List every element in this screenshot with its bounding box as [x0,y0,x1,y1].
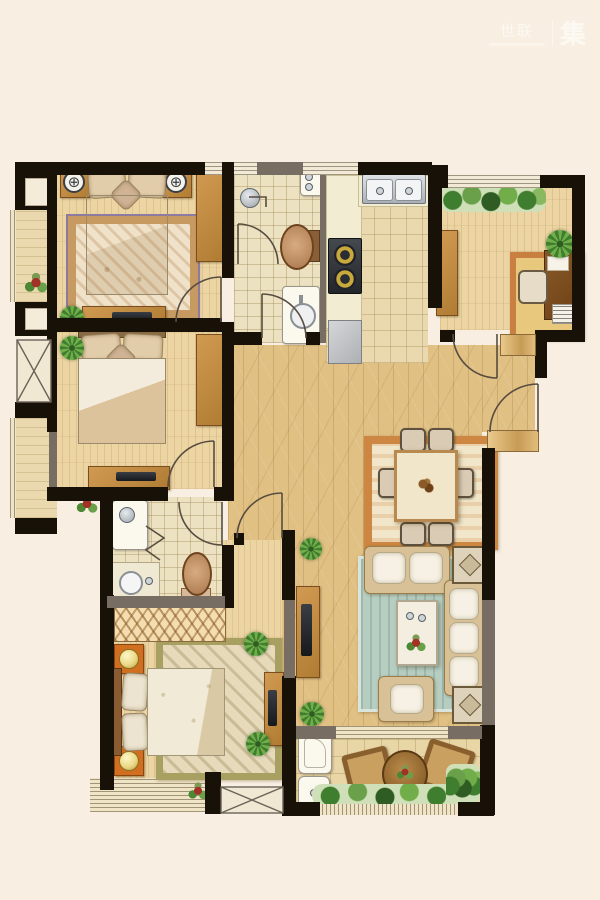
armchair [378,676,434,722]
niche [25,308,49,330]
wall [482,448,495,600]
duvet [147,668,225,756]
three-seat-sofa [444,580,486,696]
study-threshold [500,334,536,356]
wall [15,518,57,534]
wall [234,533,244,545]
plant-bed2-corner [60,336,84,360]
flower-bay-northwest [22,270,50,298]
headboard [113,668,122,756]
sink-basin [290,303,316,329]
wall [282,676,296,816]
dining-chair [400,428,426,452]
desk-chair [518,270,548,304]
plant-living-south [300,702,324,726]
wall [222,332,234,487]
burner [334,268,356,290]
pillow [121,712,149,751]
toilet-shared [280,222,318,268]
master-closet-hatched [114,606,226,642]
sink-basin [119,571,143,595]
shower-stall [112,500,148,550]
watermark-divider [552,20,553,46]
table-flowers [404,632,428,656]
wall [15,162,205,175]
wall [540,175,585,188]
wall [47,318,222,332]
wall [572,188,585,330]
master-bed [113,668,223,754]
table-centerpiece [416,476,436,496]
coffee-table [396,600,438,666]
toilet-ensuite [178,552,212,602]
bay-frame-west [10,418,16,518]
floor-plan-page: { "watermark": { "brand_left": "世联", "di… [0,0,600,900]
study-plant [546,230,574,258]
tv-niche-wall [284,596,295,678]
plant-hall [300,538,322,560]
window-north-2 [303,162,358,175]
bookstack [552,304,574,324]
wall [358,162,432,175]
bed-northwest [86,165,166,293]
loveseat [364,546,450,594]
duvet [78,358,166,444]
double-sink [362,174,426,204]
tv-west [116,472,156,481]
niche [25,178,49,206]
wall [535,330,547,378]
wall [100,595,114,790]
wall [222,487,234,499]
wall [296,802,320,816]
burner [334,244,356,266]
wall [448,726,482,739]
toilet-bowl [280,224,314,270]
watermark-brand-right: 集 [560,14,586,51]
plant-master-south [246,732,270,756]
wall [47,332,57,432]
balcony-greenery [312,784,464,806]
dining-chair [428,428,454,452]
balcony-rail [318,804,458,815]
study-planter-bed [440,186,546,212]
watermark-brand-left: 世联 [489,20,545,46]
shower-head-icon [240,188,260,208]
dining-table [394,450,458,522]
wall [282,530,295,600]
wall [458,802,494,816]
table-plant [395,763,415,783]
wall [222,322,234,332]
tv-master [268,690,277,726]
balcony-door-sill [336,726,448,739]
bay-rail-west [49,432,57,487]
bed-west [78,330,164,442]
pillow [121,672,150,712]
entry-alcove-floor [482,345,535,432]
shower-head-icon [119,507,135,523]
wall [296,726,336,739]
wall [47,175,57,320]
desk-papers [547,256,569,271]
toilet-bowl [182,552,212,596]
gas-stove [328,238,362,294]
lamp-north [119,649,139,669]
window-study-north [448,175,540,188]
wall [222,162,234,278]
faucet [299,295,303,305]
wall [306,332,320,345]
wall [320,175,326,343]
ac-platform-south [221,787,283,813]
tv-living [301,604,312,656]
refrigerator [328,320,362,364]
bay-frame-northwest [10,210,16,302]
vanity-ensuite [112,562,160,600]
ac-platform-west [17,340,51,402]
watermark-tagline-bar [489,43,545,46]
wall [428,165,442,308]
lamp-south [119,751,139,771]
wall [257,162,303,175]
wall [205,772,221,814]
wardrobe-west [196,334,224,426]
wardrobe-northwest [196,170,224,262]
window-living-east [482,600,495,725]
balcony-greenery-corner [446,764,480,804]
wall [440,330,455,342]
plant-master-north [244,632,268,656]
duvet [86,195,168,295]
wall [100,489,113,597]
dining-chair [400,522,426,546]
watermark: 世联 集 [489,14,586,51]
wall [107,596,225,608]
dining-chair [428,522,454,546]
wall [228,332,262,345]
